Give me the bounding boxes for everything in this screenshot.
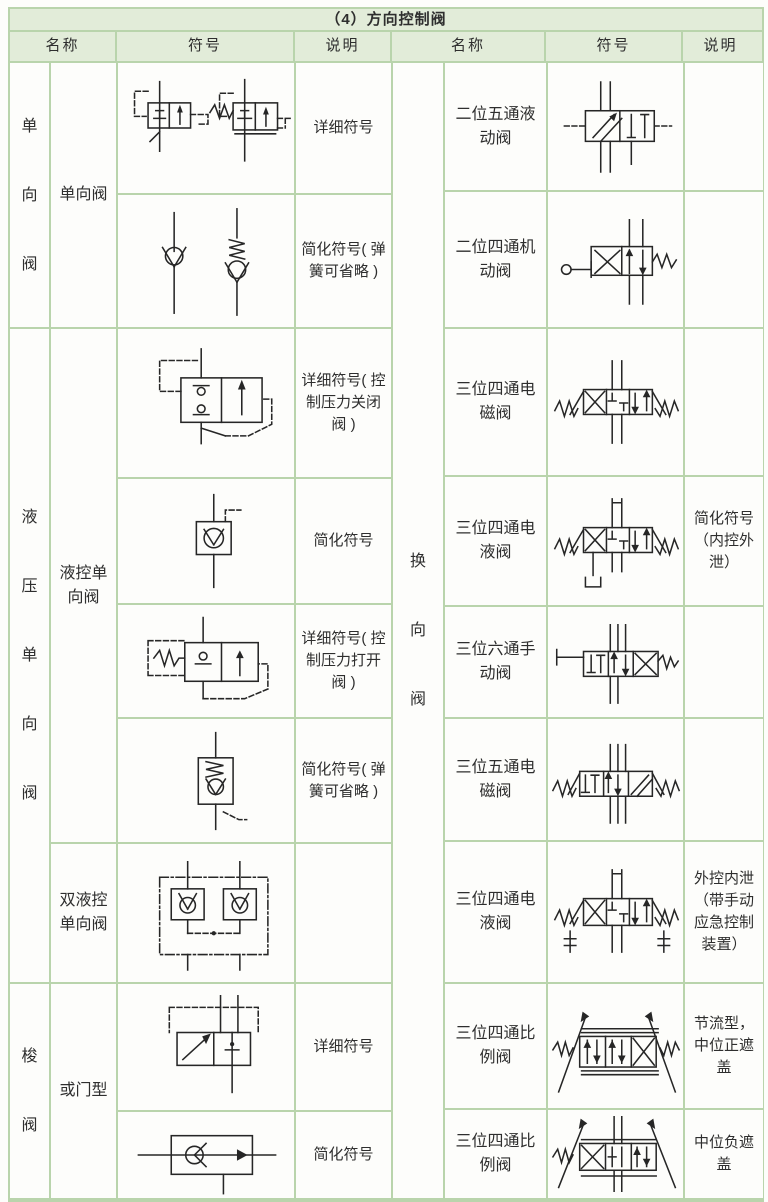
three-position-four-way-proportional-valve-throttle-symbol	[551, 988, 682, 1104]
left-group-hydraulic-check-valve: 液压单向阀	[10, 328, 50, 983]
header-left-desc: 说明	[295, 32, 392, 61]
cell-desc	[295, 843, 392, 983]
page: （4）方向控制阀 名称 符号 说明 名称 符号 说明 单向阀 单向阀	[0, 0, 768, 1200]
three-position-five-way-solenoid-valve-symbol	[551, 723, 682, 836]
cell-valve-name: 三位四通电液阀	[444, 476, 547, 606]
check-valve-simplified-symbol	[121, 199, 293, 323]
shuttle-valve-detailed-symbol	[121, 988, 293, 1106]
cell-valve-name: 三位四通电液阀	[444, 841, 547, 983]
valve-symbol-table: （4）方向控制阀 名称 符号 说明 名称 符号 说明 单向阀 单向阀	[8, 7, 764, 1202]
cell-symbol	[547, 63, 684, 191]
right-group-directional-valve: 换向阀	[393, 63, 444, 1199]
cell-desc: 详细符号	[295, 63, 392, 194]
pilot-check-valve-close-detailed-symbol	[121, 333, 293, 473]
cell-desc: 详细符号( 控制压力打开阀 )	[295, 604, 392, 718]
cell-desc: 简化符号	[295, 478, 392, 604]
cell-symbol	[547, 606, 684, 718]
header-right-symbol: 符号	[546, 32, 683, 61]
cell-desc: 详细符号( 控制压力关闭阀 )	[295, 328, 392, 478]
header-left-name: 名称	[10, 32, 117, 61]
two-position-five-way-hydraulic-valve-symbol	[551, 68, 682, 186]
cell-symbol	[117, 63, 295, 194]
left-subname-double-pilot-check-valve: 双液控单向阀	[50, 843, 117, 983]
header-right-desc: 说明	[683, 32, 758, 61]
cell-symbol	[117, 604, 295, 718]
cell-desc: 详细符号	[295, 983, 392, 1111]
left-group-shuttle-valve: 梭阀	[10, 983, 50, 1199]
table-title: （4）方向控制阀	[10, 9, 762, 32]
pilot-check-valve-spring-simplified-symbol	[121, 723, 293, 839]
cell-symbol	[117, 478, 295, 604]
three-position-four-way-electrohydraulic-valve-symbol	[551, 481, 682, 601]
left-table: 单向阀 单向阀	[10, 63, 393, 1200]
table-body: 单向阀 单向阀	[10, 63, 762, 1200]
cell-symbol	[117, 194, 295, 328]
cell-symbol	[547, 1109, 684, 1199]
check-valve-detailed-symbol	[121, 68, 293, 188]
cell-symbol	[547, 841, 684, 983]
cell-valve-name: 三位五通电磁阀	[444, 718, 547, 841]
cell-symbol	[547, 328, 684, 476]
cell-valve-name: 三位六通手动阀	[444, 606, 547, 718]
cell-symbol	[547, 983, 684, 1109]
cell-desc: 简化符号( 弹簧可省略 )	[295, 718, 392, 843]
three-position-four-way-electrohydraulic-valve-external-symbol	[551, 846, 682, 978]
cell-valve-name: 二位四通机动阀	[444, 191, 547, 328]
cell-desc: 节流型，中位正遮盖	[684, 983, 763, 1109]
cell-desc	[684, 718, 763, 841]
three-position-four-way-proportional-valve-negative-symbol	[551, 1113, 682, 1195]
cell-valve-name: 二位五通液动阀	[444, 63, 547, 191]
three-position-four-way-solenoid-valve-symbol	[551, 333, 682, 471]
cell-symbol	[117, 1111, 295, 1199]
cell-desc	[684, 191, 763, 328]
right-table: 换向阀 二位五通液动阀	[393, 63, 763, 1200]
shuttle-valve-simplified-symbol	[121, 1115, 293, 1195]
cell-desc: 简化符号	[295, 1111, 392, 1199]
cell-symbol	[547, 476, 684, 606]
pilot-check-valve-open-detailed-symbol	[121, 608, 293, 714]
cell-symbol	[117, 843, 295, 983]
cell-symbol	[547, 191, 684, 328]
cell-symbol	[117, 983, 295, 1111]
cell-valve-name: 三位四通比例阀	[444, 983, 547, 1109]
table-header: 名称 符号 说明 名称 符号 说明	[10, 32, 762, 63]
cell-desc: 外控内泄（带手动应急控制装置）	[684, 841, 763, 983]
cell-desc: 简化符号（内控外泄）	[684, 476, 763, 606]
cell-desc: 中位负遮盖	[684, 1109, 763, 1199]
two-position-four-way-mechanical-valve-symbol	[551, 196, 682, 323]
left-subname-check-valve: 单向阀	[50, 63, 117, 328]
cell-desc	[684, 63, 763, 191]
cell-symbol	[117, 718, 295, 843]
cell-desc	[684, 328, 763, 476]
cell-desc	[684, 606, 763, 718]
three-position-six-way-manual-valve-symbol	[551, 611, 682, 713]
left-group-check-valve: 单向阀	[10, 63, 50, 328]
pilot-check-valve-simplified-symbol	[121, 483, 293, 599]
cell-symbol	[117, 328, 295, 478]
cell-symbol	[547, 718, 684, 841]
left-subname-pilot-check-valve: 液控单向阀	[50, 328, 117, 843]
cell-valve-name: 三位四通比例阀	[444, 1109, 547, 1199]
header-left-symbol: 符号	[117, 32, 295, 61]
cell-desc: 简化符号( 弹簧可省略 )	[295, 194, 392, 328]
left-subname-or-gate: 或门型	[50, 983, 117, 1199]
double-pilot-check-valve-symbol	[121, 848, 293, 978]
header-right-name: 名称	[392, 32, 546, 61]
cell-valve-name: 三位四通电磁阀	[444, 328, 547, 476]
